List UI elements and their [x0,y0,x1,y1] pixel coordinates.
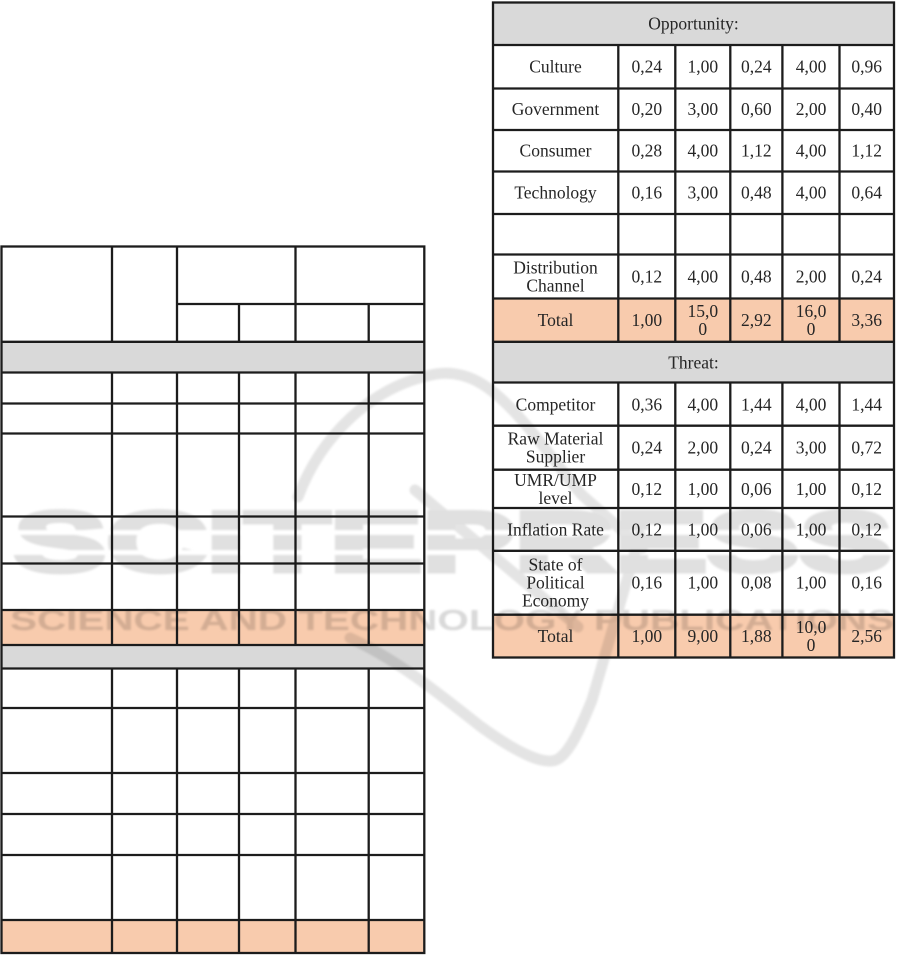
svg-text:0,24: 0,24 [631,57,662,77]
svg-text:1,00: 1,00 [687,57,718,77]
svg-text:Total: Total [538,310,574,330]
svg-text:4,00: 4,00 [796,394,827,414]
svg-text:0,12: 0,12 [631,267,662,287]
svg-text:0,48: 0,48 [741,267,772,287]
svg-text:1,44: 1,44 [741,394,772,414]
svg-text:Raw Material: Raw Material [508,429,604,449]
svg-text:2,00: 2,00 [687,438,718,458]
svg-text:1,00: 1,00 [631,310,662,330]
svg-text:Competitor: Competitor [516,394,596,414]
svg-text:0,24: 0,24 [741,438,772,458]
svg-text:UMR/UMP: UMR/UMP [514,470,597,490]
svg-text:0,24: 0,24 [741,57,772,77]
svg-text:4,00: 4,00 [796,183,827,203]
svg-text:0,40: 0,40 [851,99,882,119]
svg-text:Culture: Culture [529,57,582,77]
svg-text:4,00: 4,00 [687,141,718,161]
svg-text:0: 0 [807,319,816,339]
svg-text:Opportunity:: Opportunity: [648,14,738,34]
svg-text:0,48: 0,48 [741,183,772,203]
svg-text:0,64: 0,64 [851,183,882,203]
svg-text:1,12: 1,12 [741,141,772,161]
svg-text:0,36: 0,36 [631,394,662,414]
svg-text:0,20: 0,20 [631,99,662,119]
svg-text:0: 0 [698,319,707,339]
svg-text:0,96: 0,96 [851,57,882,77]
svg-text:2,92: 2,92 [741,310,772,330]
svg-text:0,24: 0,24 [851,267,882,287]
svg-text:3,00: 3,00 [796,438,827,458]
svg-text:Channel: Channel [526,276,584,296]
svg-text:Distribution: Distribution [513,258,598,278]
svg-text:3,00: 3,00 [687,99,718,119]
svg-text:15,0: 15,0 [687,301,718,321]
svg-text:16,0: 16,0 [796,301,827,321]
svg-text:4,00: 4,00 [687,394,718,414]
svg-text:0,28: 0,28 [631,141,662,161]
svg-text:Threat:: Threat: [668,353,719,373]
svg-text:4,00: 4,00 [796,141,827,161]
svg-text:Technology: Technology [514,183,597,203]
svg-text:3,36: 3,36 [851,310,882,330]
svg-text:1,44: 1,44 [851,394,882,414]
svg-text:Consumer: Consumer [520,141,592,161]
svg-text:Government: Government [512,99,600,119]
svg-text:SCITEPRESS: SCITEPRESS [14,495,892,590]
svg-text:3,00: 3,00 [687,183,718,203]
svg-text:0: 0 [807,635,816,655]
svg-text:2,00: 2,00 [796,267,827,287]
svg-text:0,72: 0,72 [851,438,882,458]
svg-text:SCIENCE AND TECHNOLOGY PUBLICA: SCIENCE AND TECHNOLOGY PUBLICATIONS [10,605,894,637]
svg-text:2,00: 2,00 [796,99,827,119]
svg-text:0,60: 0,60 [741,99,772,119]
svg-text:0,16: 0,16 [631,183,662,203]
svg-text:0,24: 0,24 [631,438,662,458]
svg-text:4,00: 4,00 [796,57,827,77]
svg-text:4,00: 4,00 [687,267,718,287]
svg-text:1,12: 1,12 [851,141,882,161]
